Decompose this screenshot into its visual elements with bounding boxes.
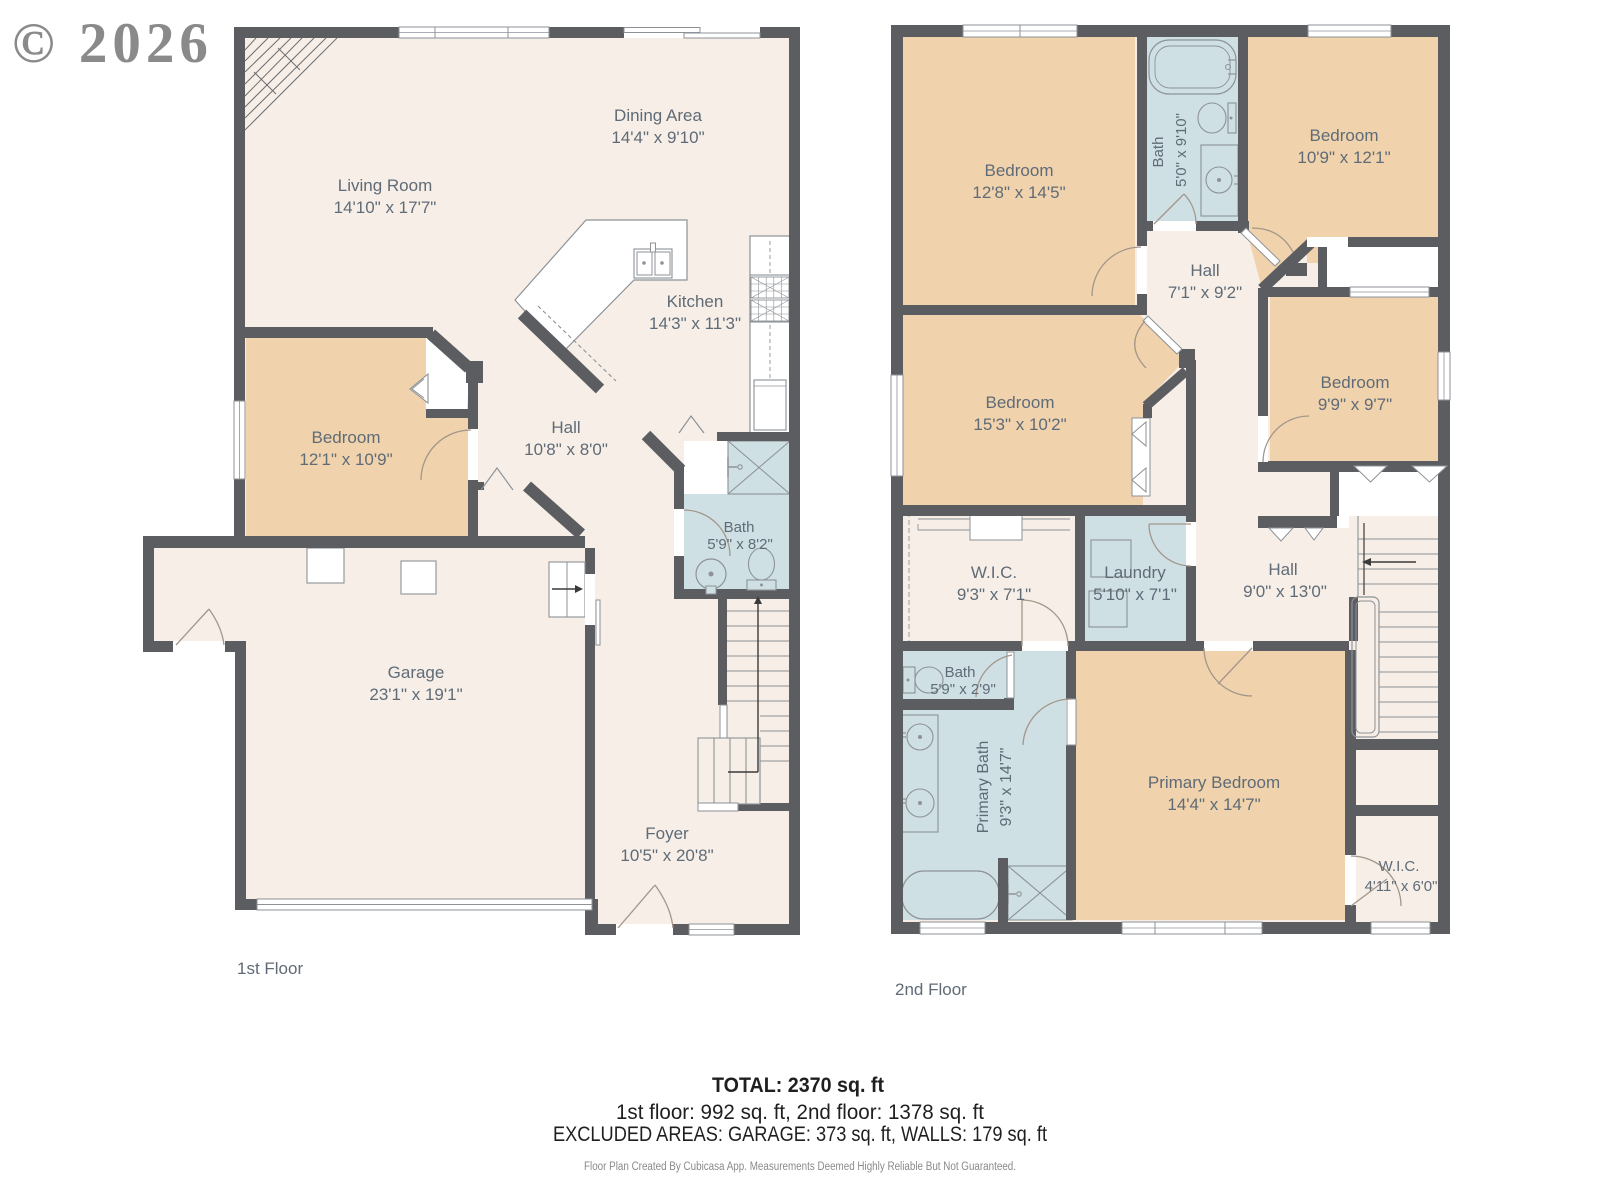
svg-text:5'9" x 2'9": 5'9" x 2'9" — [930, 681, 996, 698]
svg-text:Bedroom: Bedroom — [312, 428, 381, 447]
svg-text:TOTAL: 2370 sq. ft: TOTAL: 2370 sq. ft — [712, 1074, 884, 1097]
svg-text:5'9" x 8'2": 5'9" x 8'2" — [707, 536, 773, 553]
svg-text:9'3" x 7'1": 9'3" x 7'1" — [957, 585, 1031, 604]
svg-text:Floor Plan Created By Cubicasa: Floor Plan Created By Cubicasa App. Meas… — [584, 1161, 1016, 1173]
svg-text:12'8" x 14'5": 12'8" x 14'5" — [972, 183, 1065, 202]
svg-text:9'0" x 13'0": 9'0" x 13'0" — [1243, 582, 1327, 601]
svg-text:7'1" x 9'2": 7'1" x 9'2" — [1168, 283, 1242, 302]
svg-text:4'11" x 6'0": 4'11" x 6'0" — [1365, 878, 1438, 895]
svg-text:Hall: Hall — [551, 418, 580, 437]
svg-text:1st Floor: 1st Floor — [237, 959, 303, 978]
svg-text:Garage: Garage — [388, 663, 445, 682]
svg-text:2nd Floor: 2nd Floor — [895, 980, 967, 999]
svg-text:23'1" x 19'1": 23'1" x 19'1" — [369, 685, 462, 704]
svg-text:W.I.C.: W.I.C. — [971, 563, 1017, 582]
svg-text:Foyer: Foyer — [645, 824, 689, 843]
svg-text:EXCLUDED AREAS: GARAGE: 373 sq: EXCLUDED AREAS: GARAGE: 373 sq. ft, WALL… — [553, 1123, 1047, 1146]
svg-text:Dining Area: Dining Area — [614, 106, 702, 125]
svg-text:Bedroom: Bedroom — [986, 393, 1055, 412]
svg-text:14'3" x 11'3": 14'3" x 11'3" — [649, 314, 741, 333]
svg-text:Laundry: Laundry — [1104, 563, 1166, 582]
svg-text:1st floor: 992 sq. ft, 2nd flo: 1st floor: 992 sq. ft, 2nd floor: 1378 s… — [616, 1101, 984, 1124]
svg-text:Kitchen: Kitchen — [667, 292, 724, 311]
svg-text:Primary Bedroom: Primary Bedroom — [1148, 773, 1280, 792]
svg-text:14'10" x 17'7": 14'10" x 17'7" — [334, 198, 437, 217]
svg-text:9'9" x 9'7": 9'9" x 9'7" — [1318, 395, 1392, 414]
svg-text:Living Room: Living Room — [338, 176, 433, 195]
svg-text:W.I.C.: W.I.C. — [1379, 858, 1420, 875]
svg-text:Hall: Hall — [1190, 261, 1219, 280]
svg-text:12'1" x 10'9": 12'1" x 10'9" — [299, 450, 392, 469]
svg-text:14'4" x 9'10": 14'4" x 9'10" — [611, 128, 704, 147]
svg-text:10'5" x 20'8": 10'5" x 20'8" — [620, 846, 713, 865]
svg-text:Bath: Bath — [724, 519, 755, 536]
svg-text:Hall: Hall — [1268, 560, 1297, 579]
svg-text:Primary Bath: Primary Bath — [975, 741, 992, 833]
svg-text:14'4" x 14'7": 14'4" x 14'7" — [1167, 795, 1260, 814]
svg-text:Bath: Bath — [1150, 137, 1167, 168]
svg-text:10'9" x 12'1": 10'9" x 12'1" — [1297, 148, 1390, 167]
svg-text:10'8" x 8'0": 10'8" x 8'0" — [524, 440, 608, 459]
svg-text:© 2026: © 2026 — [12, 12, 213, 75]
svg-text:9'3" x 14'7": 9'3" x 14'7" — [998, 748, 1015, 827]
svg-text:Bath: Bath — [945, 664, 976, 681]
svg-text:5'0" x 9'10": 5'0" x 9'10" — [1173, 113, 1190, 187]
svg-text:5'10" x 7'1": 5'10" x 7'1" — [1093, 585, 1177, 604]
svg-text:Bedroom: Bedroom — [985, 161, 1054, 180]
svg-text:Bedroom: Bedroom — [1310, 126, 1379, 145]
svg-text:Bedroom: Bedroom — [1321, 373, 1390, 392]
svg-text:15'3" x 10'2": 15'3" x 10'2" — [973, 415, 1066, 434]
